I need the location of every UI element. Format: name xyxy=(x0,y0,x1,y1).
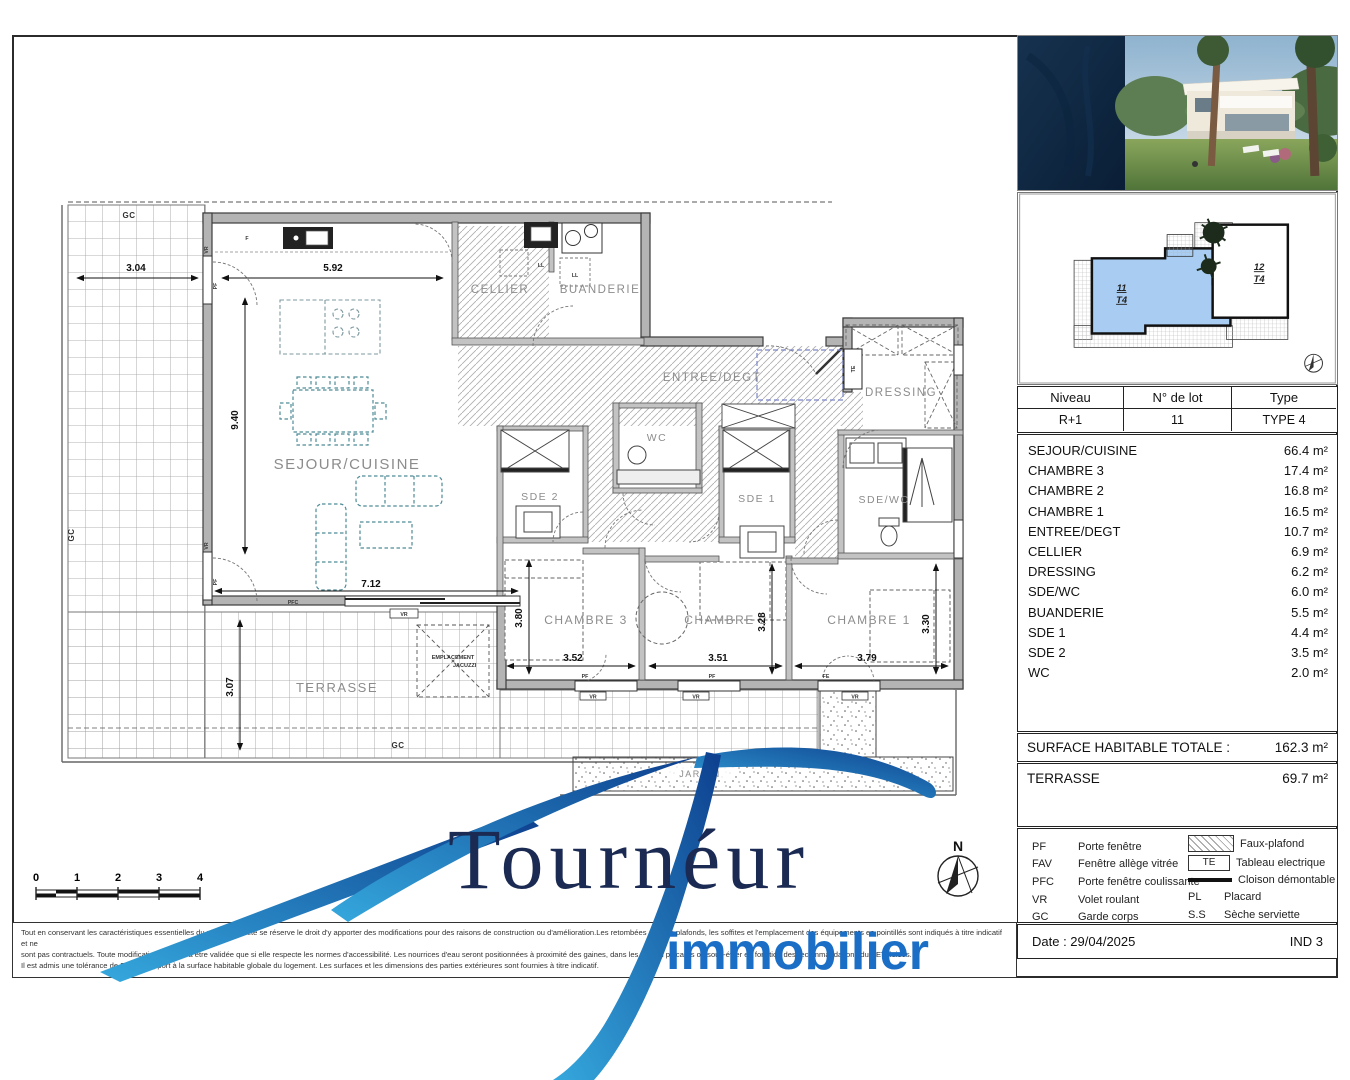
legend-label: Placard xyxy=(1224,891,1261,903)
svg-text:PF: PF xyxy=(213,579,219,586)
room-name: ENTREE/DEGT xyxy=(1028,522,1120,542)
room-label-terrasse: TERRASSE xyxy=(296,680,378,695)
svg-text:GC: GC xyxy=(67,529,76,542)
svg-text:VR: VR xyxy=(400,612,407,618)
svg-text:3.52: 3.52 xyxy=(563,653,583,664)
kitchen-counter xyxy=(215,227,450,252)
legend-row: PFCPorte fenêtre coulissante xyxy=(1032,873,1200,891)
washer-label-2: LL xyxy=(572,273,579,279)
location-keyplan: 11 T4 12 T4 xyxy=(1017,192,1338,385)
legend-code: PL xyxy=(1188,891,1218,903)
terrace-total-row: TERRASSE 69.7 m² xyxy=(1017,763,1338,827)
room-name: CHAMBRE 3 xyxy=(1028,461,1104,481)
room-label-dressing: DRESSING xyxy=(865,387,937,399)
terrace-value: 69.7 m² xyxy=(1282,771,1328,826)
north-arrow-icon: N xyxy=(938,838,978,896)
table-row: CHAMBRE 317.4 m² xyxy=(1018,461,1337,481)
svg-text:9.40: 9.40 xyxy=(230,410,241,430)
electrical-board: TE xyxy=(844,349,862,389)
svg-text:3.80: 3.80 xyxy=(514,608,525,628)
dining-set xyxy=(280,377,386,445)
legend-row: PLPlacard xyxy=(1188,888,1336,906)
table-row: SDE 23.5 m² xyxy=(1018,643,1337,663)
jacuzzi-label-1: EMPLACEMENT xyxy=(432,655,475,661)
room-name: BUANDERIE xyxy=(1028,603,1104,623)
svg-text:4: 4 xyxy=(197,872,204,884)
lot-header-numero: N° de lot xyxy=(1124,387,1232,409)
room-label-sde2: SDE 2 xyxy=(521,491,559,503)
room-name: SDE/WC xyxy=(1028,582,1080,602)
sofa-set xyxy=(316,476,442,590)
svg-text:FE: FE xyxy=(823,674,830,680)
date-row: Date : 29/04/2025 IND 3 xyxy=(1017,924,1338,959)
table-row: CHAMBRE 216.8 m² xyxy=(1018,481,1337,501)
room-area: 66.4 m² xyxy=(1284,441,1328,461)
room-area: 6.9 m² xyxy=(1291,542,1328,562)
svg-text:0: 0 xyxy=(33,872,39,884)
lot-value-niveau: R+1 xyxy=(1018,409,1124,431)
svg-text:3: 3 xyxy=(156,872,162,884)
room-area: 16.8 m² xyxy=(1284,481,1328,501)
svg-text:3.07: 3.07 xyxy=(225,677,236,697)
scale-bar: 0 1 2 3 4 xyxy=(33,872,204,900)
legend-row: VRVolet roulant xyxy=(1032,891,1200,909)
table-row: DRESSING6.2 m² xyxy=(1018,562,1337,582)
svg-text:VR: VR xyxy=(692,695,699,701)
kitchen-island xyxy=(280,300,380,354)
room-name: SDE 2 xyxy=(1028,643,1066,663)
legend-abbreviations: PFPorte fenêtre FAVFenêtre allège vitrée… xyxy=(1032,838,1200,926)
jacuzzi-label-2: JACUZZI xyxy=(453,663,477,669)
svg-text:TE: TE xyxy=(851,365,857,372)
svg-text:VR: VR xyxy=(589,695,596,701)
svg-text:7.12: 7.12 xyxy=(361,579,381,590)
legend-code: PF xyxy=(1032,841,1078,853)
beds xyxy=(505,560,950,662)
lot-table: Niveau N° de lot Type R+1 11 TYPE 4 xyxy=(1017,386,1338,433)
room-label-ch1: CHAMBRE 1 xyxy=(827,613,911,627)
terrace-label: TERRASSE xyxy=(1027,771,1100,826)
table-row: SDE 14.4 m² xyxy=(1018,623,1337,643)
table-row: SDE/WC6.0 m² xyxy=(1018,582,1337,602)
svg-text:3.79: 3.79 xyxy=(857,653,877,664)
room-name: WC xyxy=(1028,663,1050,683)
svg-text:PF: PF xyxy=(709,674,716,680)
plan-sheet: LL LL xyxy=(0,0,1350,1080)
legend-label: Tableau electrique xyxy=(1236,857,1325,869)
room-name: CHAMBRE 1 xyxy=(1028,502,1104,522)
room-area: 16.5 m² xyxy=(1284,502,1328,522)
legend-label: Faux-plafond xyxy=(1240,838,1304,850)
legend-code: S.S xyxy=(1188,909,1218,921)
room-name: CHAMBRE 2 xyxy=(1028,481,1104,501)
date-label: Date : 29/04/2025 xyxy=(1032,934,1135,949)
project-photo xyxy=(1017,35,1338,191)
legend-code: FAV xyxy=(1032,858,1078,870)
room-area: 5.5 m² xyxy=(1291,603,1328,623)
legend-row: FAVFenêtre allège vitrée xyxy=(1032,856,1200,874)
svg-text:N: N xyxy=(953,838,963,854)
legend-label: Volet roulant xyxy=(1078,894,1139,906)
table-row: ENTREE/DEGT10.7 m² xyxy=(1018,522,1337,542)
room-label-cellier: CELLIER xyxy=(471,284,529,296)
floor-plan: LL LL xyxy=(12,35,1017,922)
room-label-sejour: SEJOUR/CUISINE xyxy=(274,456,421,473)
legend-row: Cloison démontable xyxy=(1188,872,1336,888)
room-name: CELLIER xyxy=(1028,542,1082,562)
room-area: 4.4 m² xyxy=(1291,623,1328,643)
room-label-sdewc: SDE/WC xyxy=(859,494,910,506)
svg-text:T4: T4 xyxy=(1116,294,1128,305)
room-area: 3.5 m² xyxy=(1291,643,1328,663)
legend-code: PFC xyxy=(1032,876,1078,888)
room-label-buanderie: BUANDERIE xyxy=(560,284,641,296)
table-row: SEJOUR/CUISINE66.4 m² xyxy=(1018,441,1337,461)
washer-label: LL xyxy=(538,263,545,269)
svg-text:VR: VR xyxy=(204,246,210,253)
table-row: WC2.0 m² xyxy=(1018,663,1337,683)
table-row: CHAMBRE 116.5 m² xyxy=(1018,502,1337,522)
svg-text:11: 11 xyxy=(1117,282,1127,293)
svg-text:F: F xyxy=(245,236,248,242)
room-area: 2.0 m² xyxy=(1291,663,1328,683)
room-area: 6.2 m² xyxy=(1291,562,1328,582)
room-label-jardin: JARDIN xyxy=(679,769,721,779)
svg-text:VR: VR xyxy=(851,695,858,701)
room-name: SDE 1 xyxy=(1028,623,1066,643)
legend-code: GC xyxy=(1032,911,1078,923)
svg-text:GC: GC xyxy=(123,211,136,220)
table-row: BUANDERIE5.5 m² xyxy=(1018,603,1337,623)
surface-total-label: SURFACE HABITABLE TOTALE : xyxy=(1027,740,1230,755)
room-label-sde1: SDE 1 xyxy=(738,493,776,505)
room-name: DRESSING xyxy=(1028,562,1096,582)
room-areas-table: SEJOUR/CUISINE66.4 m² CHAMBRE 317.4 m² C… xyxy=(1017,434,1338,732)
lot-value-type: TYPE 4 xyxy=(1232,409,1336,431)
svg-text:12: 12 xyxy=(1254,261,1265,272)
room-area: 10.7 m² xyxy=(1284,522,1328,542)
te-box-icon: TE xyxy=(1188,855,1230,871)
svg-text:VR: VR xyxy=(204,542,210,549)
logo-subtitle: immobilier xyxy=(666,926,929,978)
surface-total-value: 162.3 m² xyxy=(1275,740,1328,755)
keyplan-drawing: 11 T4 12 T4 xyxy=(1018,193,1337,384)
room-area: 6.0 m² xyxy=(1291,582,1328,602)
legend-label: Sèche serviette xyxy=(1224,909,1300,921)
legend-label: Garde corps xyxy=(1078,911,1139,923)
legend-code: VR xyxy=(1032,894,1078,906)
table-row: CELLIER6.9 m² xyxy=(1018,542,1337,562)
surface-total-row: SURFACE HABITABLE TOTALE : 162.3 m² xyxy=(1017,733,1338,762)
svg-text:T4: T4 xyxy=(1254,273,1266,284)
legend-label: Cloison démontable xyxy=(1238,874,1335,886)
index-label: IND 3 xyxy=(1290,934,1323,949)
logo-wordmark: Tournéur xyxy=(448,816,810,902)
room-label-entree: ENTREE/DEGT xyxy=(663,372,761,384)
photo-render xyxy=(1018,36,1338,191)
legend-row: S.SSèche serviette xyxy=(1188,906,1336,924)
svg-text:1: 1 xyxy=(74,872,80,884)
svg-text:5.92: 5.92 xyxy=(323,263,343,274)
lot-header-niveau: Niveau xyxy=(1018,387,1124,409)
svg-text:GC: GC xyxy=(392,741,405,750)
svg-text:3.28: 3.28 xyxy=(757,612,768,632)
thick-line-icon xyxy=(1188,878,1232,882)
svg-text:3.51: 3.51 xyxy=(708,653,728,664)
svg-text:PFC: PFC xyxy=(288,600,299,606)
hatch-swatch-icon xyxy=(1188,835,1234,852)
legend-box: PFPorte fenêtre FAVFenêtre allège vitrée… xyxy=(1017,828,1338,923)
lot-header-type: Type xyxy=(1232,387,1336,409)
legend-symbols: Faux-plafond TETableau electrique Cloiso… xyxy=(1188,834,1336,924)
legend-label: Porte fenêtre xyxy=(1078,841,1142,853)
legend-row: Faux-plafond xyxy=(1188,834,1336,853)
legend-label: Fenêtre allège vitrée xyxy=(1078,858,1178,870)
room-name: SEJOUR/CUISINE xyxy=(1028,441,1137,461)
svg-text:3.30: 3.30 xyxy=(921,614,932,634)
lot-value-numero: 11 xyxy=(1124,409,1232,431)
svg-text:2: 2 xyxy=(115,872,121,884)
legend-label: Porte fenêtre coulissante xyxy=(1078,876,1200,888)
room-label-wc: WC xyxy=(647,432,668,444)
legend-row: PFPorte fenêtre xyxy=(1032,838,1200,856)
svg-text:3.04: 3.04 xyxy=(126,263,146,274)
legend-row: TETableau electrique xyxy=(1188,853,1336,872)
svg-text:PF: PF xyxy=(213,283,219,290)
room-label-ch2: CHAMBRE 2 xyxy=(684,613,768,627)
svg-text:PF: PF xyxy=(582,674,589,680)
room-label-ch3: CHAMBRE 3 xyxy=(544,613,628,627)
room-area: 17.4 m² xyxy=(1284,461,1328,481)
